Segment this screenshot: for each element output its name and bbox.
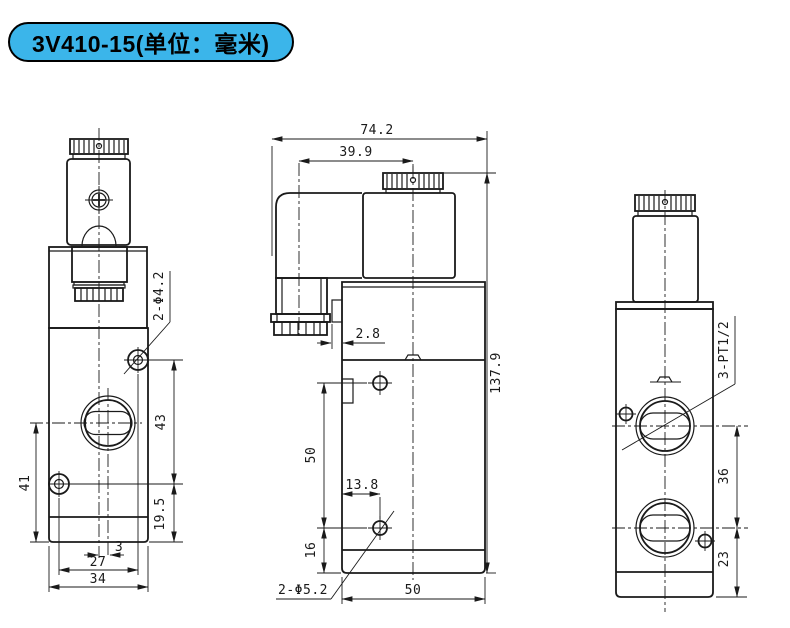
dim-front-hole-bottom-offset: 19.5	[149, 484, 183, 542]
rear-hole-top-left	[616, 404, 636, 424]
dim-side-coil-center-offset: 39.9	[299, 145, 413, 172]
din-connector-side	[271, 193, 362, 335]
dim-side-tab-width-label: 2.8	[356, 327, 381, 342]
dim-front-body-width-label: 34	[90, 572, 107, 587]
side-hole-lower	[368, 516, 392, 540]
dim-rear-port-vertical-spacing: 36	[717, 426, 737, 528]
phillips-screw	[85, 186, 113, 214]
drawing-sheet: 2-Φ4.2 41 43 19.5	[0, 0, 790, 628]
dim-rear-port-callout: 3-PT1/2	[622, 316, 735, 450]
valve-body-side	[332, 282, 485, 573]
dim-side-coil-center-offset-label: 39.9	[339, 145, 372, 160]
dim-side-body-width: 50	[342, 577, 485, 604]
dim-front-hole-bottom-offset-label: 19.5	[153, 497, 168, 530]
dim-side-body-width-label: 50	[405, 583, 422, 598]
din-connector-front	[49, 247, 147, 328]
title-badge-label: 3V410-15(单位：毫米)	[32, 25, 270, 59]
front-dimensions: 2-Φ4.2 41 43 19.5	[18, 271, 183, 592]
dim-rear-port-callout-label: 3-PT1/2	[717, 321, 732, 379]
dim-side-hole-vertical-spacing-label: 50	[304, 447, 319, 464]
dim-front-port-center-offset-label: 3	[115, 540, 123, 555]
rear-dimensions: 3-PT1/2 36 23	[622, 316, 747, 597]
dim-front-port-center-height: 41	[18, 423, 49, 542]
valve-body-rear	[616, 309, 715, 597]
technical-drawing: 2-Φ4.2 41 43 19.5	[0, 0, 790, 628]
side-view: 74.2 39.9 137.9 2	[271, 123, 504, 604]
side-hole-upper	[368, 371, 392, 395]
dim-side-overall-width-label: 74.2	[360, 123, 393, 138]
dim-front-hole-vertical-spacing-label: 43	[154, 414, 169, 431]
solenoid-coil-front	[67, 159, 130, 246]
solenoid-coil-side	[363, 193, 455, 278]
dim-rear-port-bottom-offset-label: 23	[717, 551, 732, 568]
dim-side-overall-height: 137.9	[443, 173, 504, 573]
mounting-hole-bottom-left	[48, 471, 183, 497]
dim-front-hole-vertical-spacing: 43	[154, 360, 174, 484]
dim-side-hole-callout: 2-Φ5.2	[276, 511, 394, 599]
dim-side-hole-vertical-spacing: 50	[304, 383, 367, 528]
rear-view: 3-PT1/2 36 23	[612, 190, 748, 612]
dim-front-hole-horizontal-spacing: 27	[59, 374, 138, 575]
dim-side-hole-callout-label: 2-Φ5.2	[278, 583, 328, 598]
manual-override-notch-rear	[657, 377, 672, 382]
coil-flange	[616, 302, 713, 309]
front-centerlines	[30, 128, 142, 558]
front-view: 2-Φ4.2 41 43 19.5	[18, 128, 183, 592]
title-badge: 3V410-15(单位：毫米)	[8, 22, 294, 62]
dim-rear-port-bottom-offset: 23	[716, 528, 747, 597]
dim-front-hole-callout-label: 2-Φ4.2	[152, 271, 167, 321]
dim-front-port-center-height-label: 41	[18, 475, 33, 492]
cable-gland-side	[274, 322, 327, 335]
side-dimensions: 74.2 39.9 137.9 2	[272, 123, 504, 604]
dim-side-hole-bottom-offset: 16	[304, 528, 341, 573]
dim-front-hole-horizontal-spacing-label: 27	[90, 555, 107, 570]
dim-side-hole-horizontal-inset-label: 13.8	[345, 478, 378, 493]
solenoid-coil-rear	[616, 216, 713, 309]
dim-side-hole-horizontal-inset: 13.8	[342, 478, 380, 519]
dim-side-hole-bottom-offset-label: 16	[304, 542, 319, 559]
side-tab	[332, 300, 342, 322]
dim-side-overall-height-label: 137.9	[489, 352, 504, 394]
rear-hole-bottom-right	[695, 531, 715, 551]
cable-gland-front	[75, 288, 123, 301]
dim-rear-port-vertical-spacing-label: 36	[717, 468, 732, 485]
side-centerlines	[299, 163, 413, 580]
